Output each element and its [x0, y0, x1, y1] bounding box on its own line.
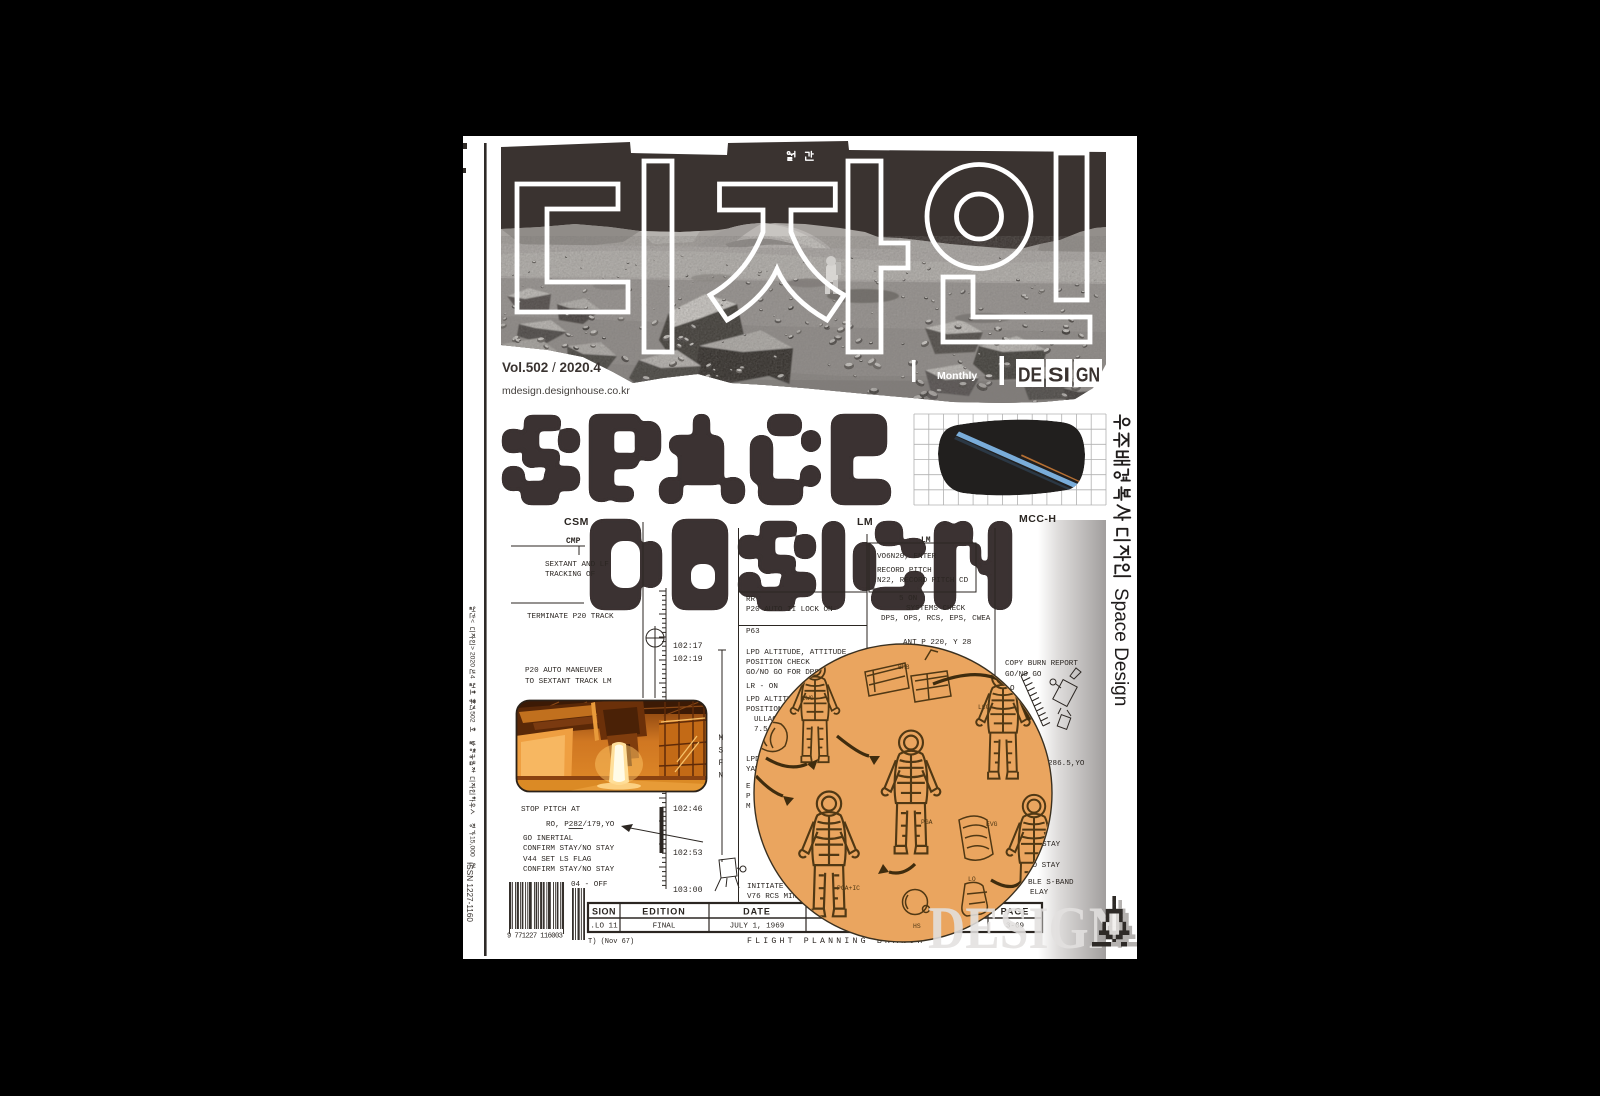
svg-text:102:53: 102:53 [673, 849, 703, 858]
svg-text:ISSN 1227-1160: ISSN 1227-1160 [465, 862, 474, 922]
svg-text:102:46: 102:46 [673, 805, 703, 814]
svg-text:103:00: 103:00 [673, 886, 703, 895]
svg-text:EDITION: EDITION [642, 907, 686, 917]
svg-text:P20 AUTO II LOCK ON: P20 AUTO II LOCK ON [746, 606, 833, 614]
svg-text:EVG: EVG [986, 821, 998, 828]
svg-text:RO, P282/179,YO: RO, P282/179,YO [546, 821, 615, 829]
svg-text:T) (Nov 67): T) (Nov 67) [588, 938, 634, 946]
svg-text:LR - ON: LR - ON [746, 683, 778, 691]
svg-text:.LO 11: .LO 11 [590, 923, 618, 931]
svg-text:102:17: 102:17 [673, 642, 703, 651]
svg-text:DATE: DATE [743, 907, 771, 917]
svg-text:DPS, OPS, RCS, EPS, CWEA: DPS, OPS, RCS, EPS, CWEA [881, 615, 991, 623]
svg-text:286.5,YO: 286.5,YO [1048, 760, 1085, 768]
svg-text:RECORD PITCH: RECORD PITCH [877, 567, 932, 575]
svg-text:CMP: CMP [566, 537, 581, 546]
svg-text:P: P [746, 793, 751, 801]
svg-text:CSM: CSM [564, 516, 589, 528]
svg-text:5 ON: 5 ON [899, 595, 917, 603]
svg-text:LPD ALTITUDE, ATTITUDE: LPD ALTITUDE, ATTITUDE [746, 649, 847, 657]
svg-text:N: N [719, 772, 724, 781]
svg-text:<: < [468, 619, 475, 623]
svg-text:04 - OFF: 04 - OFF [571, 881, 608, 889]
svg-text:GN: GN [1076, 365, 1100, 387]
svg-text:SION: SION [592, 907, 616, 917]
svg-text:POSITION CHECK: POSITION CHECK [746, 659, 810, 667]
svg-text:502: 502 [468, 711, 475, 723]
svg-text:9 771227 116003: 9 771227 116003 [507, 933, 563, 941]
svg-text:CONFIRM STAY/NO STAY: CONFIRM STAY/NO STAY [523, 866, 615, 874]
svg-text:STAY: STAY [1042, 841, 1061, 849]
svg-text:Monthly: Monthly [937, 370, 977, 382]
svg-text:102:19: 102:19 [673, 655, 703, 664]
svg-text:4: 4 [468, 675, 475, 679]
svg-text:mdesign.designhouse.co.kr: mdesign.designhouse.co.kr [502, 385, 630, 397]
svg-text:PGA: PGA [921, 819, 933, 826]
svg-text:F: F [719, 759, 724, 768]
svg-text:HS: HS [913, 923, 921, 930]
svg-text:Space Design: Space Design [1110, 588, 1131, 706]
svg-text:STOP PITCH AT: STOP PITCH AT [521, 806, 581, 814]
svg-text:S: S [719, 747, 724, 756]
svg-text:DE: DE [1018, 365, 1042, 387]
svg-text:LCG: LCG [978, 704, 990, 711]
svg-text:BMB: BMB [898, 664, 910, 671]
svg-text:E: E [746, 783, 751, 791]
svg-text:SI: SI [1048, 365, 1070, 387]
svg-text:LM: LM [921, 536, 931, 545]
svg-text:INITIATE: INITIATE [747, 883, 784, 891]
svg-text:FINAL: FINAL [653, 923, 676, 931]
svg-text:COPY BURN REPORT: COPY BURN REPORT [1005, 660, 1078, 668]
svg-text:SEXTANT AND LF: SEXTANT AND LF [545, 561, 609, 569]
svg-text:VO6N20, ENTER: VO6N20, ENTER [877, 553, 937, 561]
svg-text:CWG: CWG [802, 695, 814, 702]
svg-text:DESIGN: DESIGN [928, 895, 1126, 959]
svg-text:> 2020: > 2020 [468, 646, 475, 667]
svg-text:CONFIRM STAY/NO STAY: CONFIRM STAY/NO STAY [523, 845, 615, 853]
svg-text:Vol.502 / 2020.4: Vol.502 / 2020.4 [502, 360, 601, 375]
svg-text:TO SEXTANT TRACK LM: TO SEXTANT TRACK LM [525, 678, 612, 686]
svg-text:LM: LM [857, 516, 873, 528]
svg-text:JULY 1, 1969: JULY 1, 1969 [730, 923, 785, 931]
svg-text:P63: P63 [746, 628, 760, 636]
svg-text:MCC-H: MCC-H [1019, 513, 1057, 525]
svg-text:15,000: 15,000 [468, 836, 475, 857]
svg-text:GO INERTIAL: GO INERTIAL [523, 835, 574, 843]
svg-text:SYSTEMS CHECK: SYSTEMS CHECK [906, 605, 966, 613]
svg-text:V44 SET LS FLAG: V44 SET LS FLAG [523, 856, 592, 864]
svg-text:GO/NO GO FOR DPS: GO/NO GO FOR DPS [746, 669, 819, 677]
svg-text:BLE S-BAND: BLE S-BAND [1028, 879, 1074, 887]
svg-text:TERMINATE P20 TRACK: TERMINATE P20 TRACK [527, 613, 614, 621]
svg-text:N22, RECORD PITCH CD: N22, RECORD PITCH CD [877, 577, 969, 585]
svg-text:M: M [746, 803, 751, 811]
svg-text:TRACKING OF: TRACKING OF [545, 571, 596, 579]
svg-text:M: M [719, 734, 724, 743]
svg-text:RR: RR [746, 596, 756, 604]
svg-text:PGA+IC: PGA+IC [837, 885, 860, 892]
svg-text:LO: LO [968, 876, 976, 883]
svg-text:P20 AUTO MANEUVER: P20 AUTO MANEUVER [525, 667, 603, 675]
